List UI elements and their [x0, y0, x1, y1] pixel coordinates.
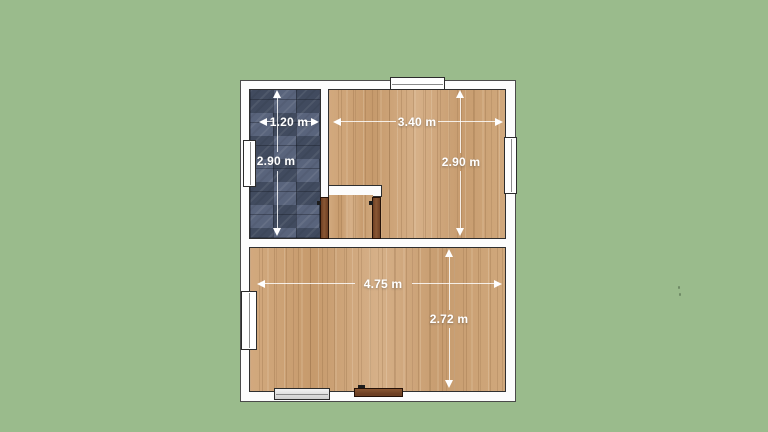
entry-door[interactable]: [354, 388, 403, 397]
axis-marker-icon: [678, 286, 680, 289]
entry-door-handle-icon: [358, 385, 365, 388]
window-living-left-wall[interactable]: [241, 291, 257, 350]
bathroom-floor[interactable]: [249, 89, 321, 239]
hallway-floor[interactable]: [329, 195, 373, 239]
window-top-wall[interactable]: [390, 77, 445, 90]
floor-plan[interactable]: [241, 81, 515, 401]
bathroom-door-handle-icon: [317, 201, 321, 205]
bedroom-door-handle-icon: [369, 201, 373, 205]
bathroom-door[interactable]: [320, 197, 329, 239]
window-bedroom-right-wall[interactable]: [504, 137, 517, 194]
axis-marker-icon: [679, 293, 681, 296]
window-living-bottom-wall[interactable]: [274, 388, 330, 400]
living-room-floor[interactable]: [249, 247, 506, 392]
viewport: 1.20 m 3.40 m 2.90 m 2.90 m: [0, 0, 768, 432]
bedroom-door[interactable]: [372, 197, 381, 239]
window-bathroom-left-wall[interactable]: [243, 140, 256, 187]
